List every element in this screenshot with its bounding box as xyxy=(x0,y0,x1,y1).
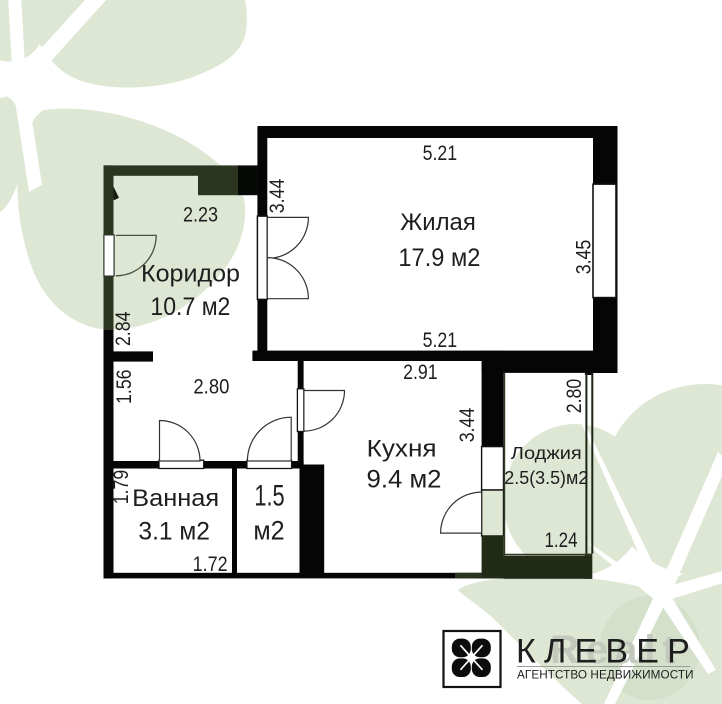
svg-text:2.23: 2.23 xyxy=(183,203,218,226)
svg-text:1.24: 1.24 xyxy=(545,529,578,552)
svg-text:2.80: 2.80 xyxy=(563,379,586,414)
svg-text:м2: м2 xyxy=(253,516,284,546)
svg-text:5.21: 5.21 xyxy=(423,329,458,352)
svg-text:1.56: 1.56 xyxy=(113,369,136,404)
svg-text:9.4 м2: 9.4 м2 xyxy=(367,466,442,494)
svg-text:3.44: 3.44 xyxy=(456,407,479,442)
svg-text:Кухня: Кухня xyxy=(367,436,437,463)
svg-text:2.80: 2.80 xyxy=(193,375,229,398)
svg-text:3.44: 3.44 xyxy=(266,178,289,213)
svg-text:1.5: 1.5 xyxy=(254,480,284,513)
svg-text:2.84: 2.84 xyxy=(112,311,135,346)
svg-text:Жилая: Жилая xyxy=(400,209,476,236)
svg-text:1.72: 1.72 xyxy=(193,553,228,576)
svg-text:10.7 м2: 10.7 м2 xyxy=(150,293,230,321)
svg-text:3.1 м2: 3.1 м2 xyxy=(138,518,210,546)
svg-text:2.5(3.5)м2: 2.5(3.5)м2 xyxy=(504,468,588,488)
svg-text:Коридор: Коридор xyxy=(141,261,240,288)
svg-text:АГЕНТСТВО НЕДВИЖИМОСТИ: АГЕНТСТВО НЕДВИЖИМОСТИ xyxy=(517,669,694,682)
svg-text:КЛЕВЕР: КЛЕВЕР xyxy=(516,633,698,671)
svg-text:1.79: 1.79 xyxy=(110,470,133,505)
svg-text:2.91: 2.91 xyxy=(403,361,438,384)
svg-text:5.21: 5.21 xyxy=(423,142,458,165)
svg-text:Ванная: Ванная xyxy=(132,485,219,512)
svg-text:Лоджия: Лоджия xyxy=(511,443,582,463)
svg-text:3.45: 3.45 xyxy=(573,240,596,275)
svg-text:17.9 м2: 17.9 м2 xyxy=(398,244,480,272)
